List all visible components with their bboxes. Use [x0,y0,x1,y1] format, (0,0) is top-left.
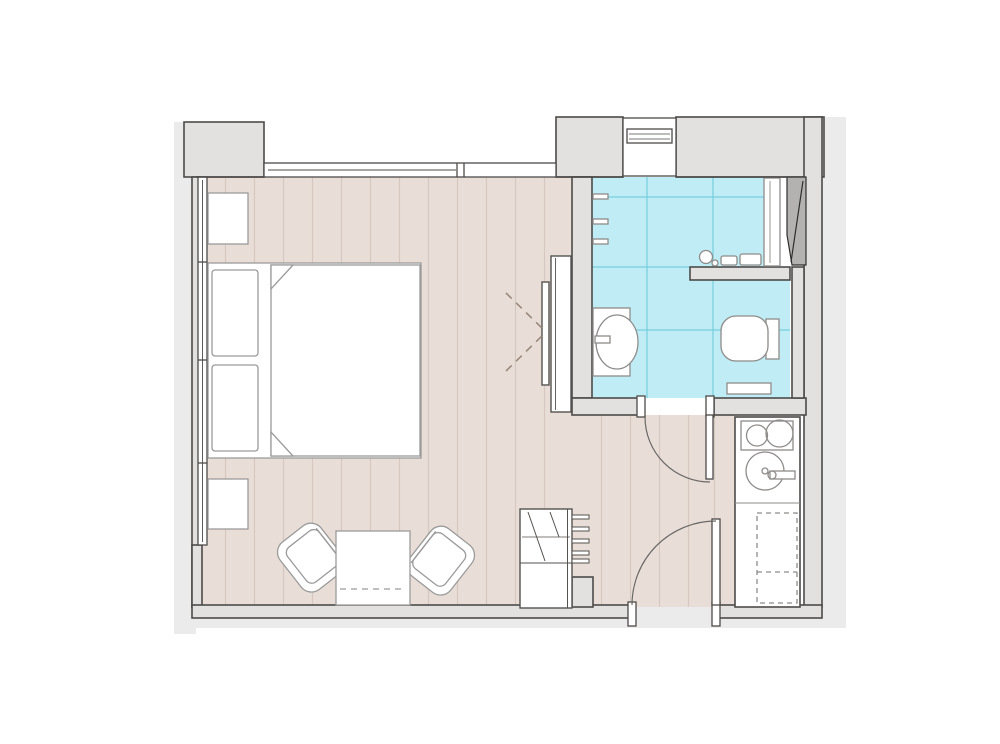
shower-shelf [593,194,608,199]
light-shaft [623,118,676,176]
kitchen-faucet [770,471,795,479]
closet-shelf-mark [572,559,589,563]
glass-partition [764,178,780,266]
side-table [336,531,410,605]
duct [787,177,806,265]
shower-shelf [593,239,608,244]
closet-shelf-mark [572,539,589,543]
bath-mat [727,383,771,394]
bathroom-entry-wall-right [714,398,806,415]
toilet-bowl [721,316,768,361]
pillow-bottom [212,365,258,451]
exterior-wall-top-center [556,117,623,177]
exterior-wall-right [804,117,822,607]
bathroom-entry-wall-left [572,398,641,415]
wall-stub-bottom [572,577,593,607]
shaft-window [627,129,672,143]
bathroom-door-jamb-left [637,396,645,417]
toiletry-item [740,254,761,265]
washbasin-faucet [595,336,610,343]
bathroom-shelf [690,267,790,280]
wall-below-window [192,545,202,607]
toiletry-item [712,260,718,266]
closet-shelf-mark [572,527,589,531]
nightstand-bottom [208,479,248,529]
closet-shelf-mark [572,551,589,555]
entrance-door-jamb-left [628,602,636,626]
duvet [271,265,420,456]
toiletry-item [700,251,713,264]
kitchenette [735,417,800,607]
closet-shelf-mark [572,515,589,519]
toiletry-item [721,256,737,265]
bathroom-right-wall [792,267,804,398]
entrance-door-leaf [712,519,720,605]
exterior-wall-top-right [676,117,824,177]
kitchen-unit [735,417,800,607]
bathroom-door-jamb-right [706,396,714,417]
exterior-wall-top-left [184,122,264,177]
nightstand-top [208,193,248,244]
floor-plan-page [0,0,1000,744]
bathroom-door-leaf [706,415,713,479]
wardrobe-tall [551,256,571,412]
closet [520,509,572,608]
wardrobe-door-panel [542,282,549,385]
floor-plan [0,0,1000,744]
pillow-top [212,270,258,356]
shower-shelf [593,219,608,224]
bathroom-partition-wall [572,177,592,398]
